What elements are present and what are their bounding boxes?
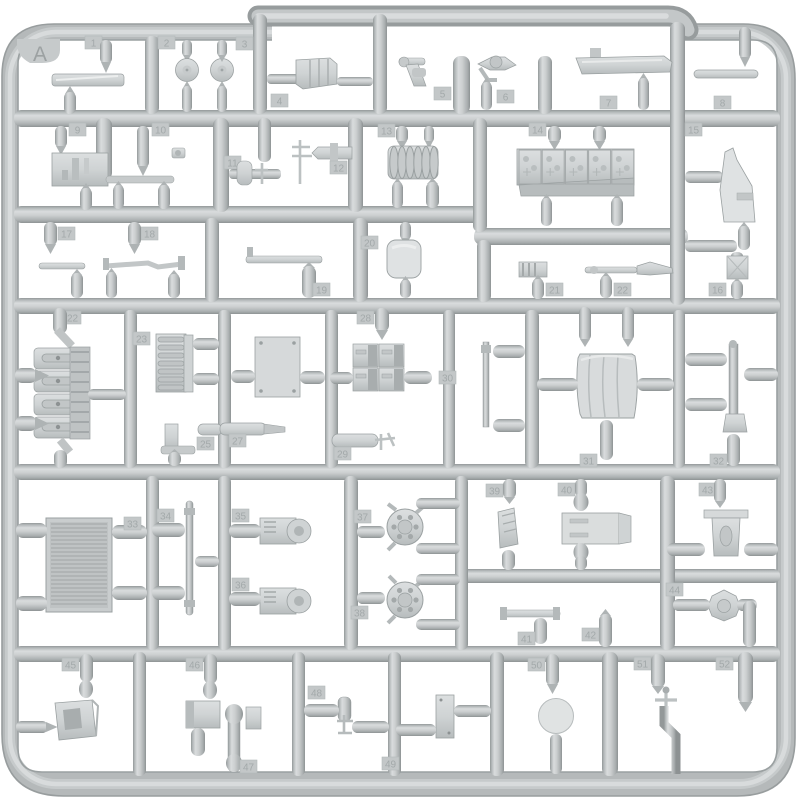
- svg-text:29: 29: [337, 449, 349, 460]
- svg-text:47: 47: [243, 762, 255, 773]
- svg-text:5: 5: [440, 89, 446, 100]
- svg-text:31: 31: [583, 456, 595, 467]
- svg-text:40: 40: [561, 485, 573, 496]
- svg-text:33: 33: [127, 519, 139, 530]
- svg-text:30: 30: [442, 373, 454, 384]
- svg-text:16: 16: [712, 285, 724, 296]
- svg-text:48: 48: [311, 688, 323, 699]
- svg-text:38: 38: [354, 608, 366, 619]
- svg-text:9: 9: [75, 125, 81, 136]
- svg-text:36: 36: [235, 580, 247, 591]
- svg-text:3: 3: [242, 39, 248, 50]
- svg-text:45: 45: [65, 660, 77, 671]
- svg-text:17: 17: [61, 229, 73, 240]
- svg-text:12: 12: [333, 163, 345, 174]
- svg-text:52: 52: [719, 659, 731, 670]
- svg-text:51: 51: [637, 659, 649, 670]
- svg-text:10: 10: [155, 125, 167, 136]
- svg-text:11: 11: [227, 158, 238, 169]
- svg-text:14: 14: [532, 125, 544, 136]
- svg-text:46: 46: [189, 660, 201, 671]
- svg-text:23: 23: [136, 334, 148, 345]
- svg-text:A: A: [33, 43, 47, 66]
- svg-text:13: 13: [381, 126, 393, 137]
- svg-text:43: 43: [702, 485, 714, 496]
- svg-text:42: 42: [585, 630, 597, 641]
- svg-text:8: 8: [720, 98, 726, 109]
- svg-text:50: 50: [531, 660, 543, 671]
- svg-text:7: 7: [606, 98, 612, 109]
- svg-text:4: 4: [277, 96, 283, 107]
- svg-text:1: 1: [91, 38, 97, 49]
- svg-text:22: 22: [617, 285, 629, 296]
- svg-text:39: 39: [489, 486, 501, 497]
- svg-text:32: 32: [713, 456, 725, 467]
- svg-text:19: 19: [316, 285, 328, 296]
- svg-text:2: 2: [164, 38, 170, 49]
- svg-text:21: 21: [549, 285, 561, 296]
- svg-text:35: 35: [235, 511, 247, 522]
- svg-text:37: 37: [357, 512, 369, 523]
- svg-text:41: 41: [521, 634, 533, 645]
- svg-text:15: 15: [688, 125, 700, 136]
- svg-text:18: 18: [144, 229, 156, 240]
- svg-text:49: 49: [385, 759, 397, 770]
- svg-text:25: 25: [200, 439, 212, 450]
- svg-text:6: 6: [503, 92, 509, 103]
- svg-text:20: 20: [364, 238, 376, 249]
- svg-text:22: 22: [67, 313, 79, 324]
- svg-text:34: 34: [160, 511, 172, 522]
- svg-text:27: 27: [232, 436, 244, 447]
- svg-text:28: 28: [360, 313, 372, 324]
- svg-text:44: 44: [669, 585, 681, 596]
